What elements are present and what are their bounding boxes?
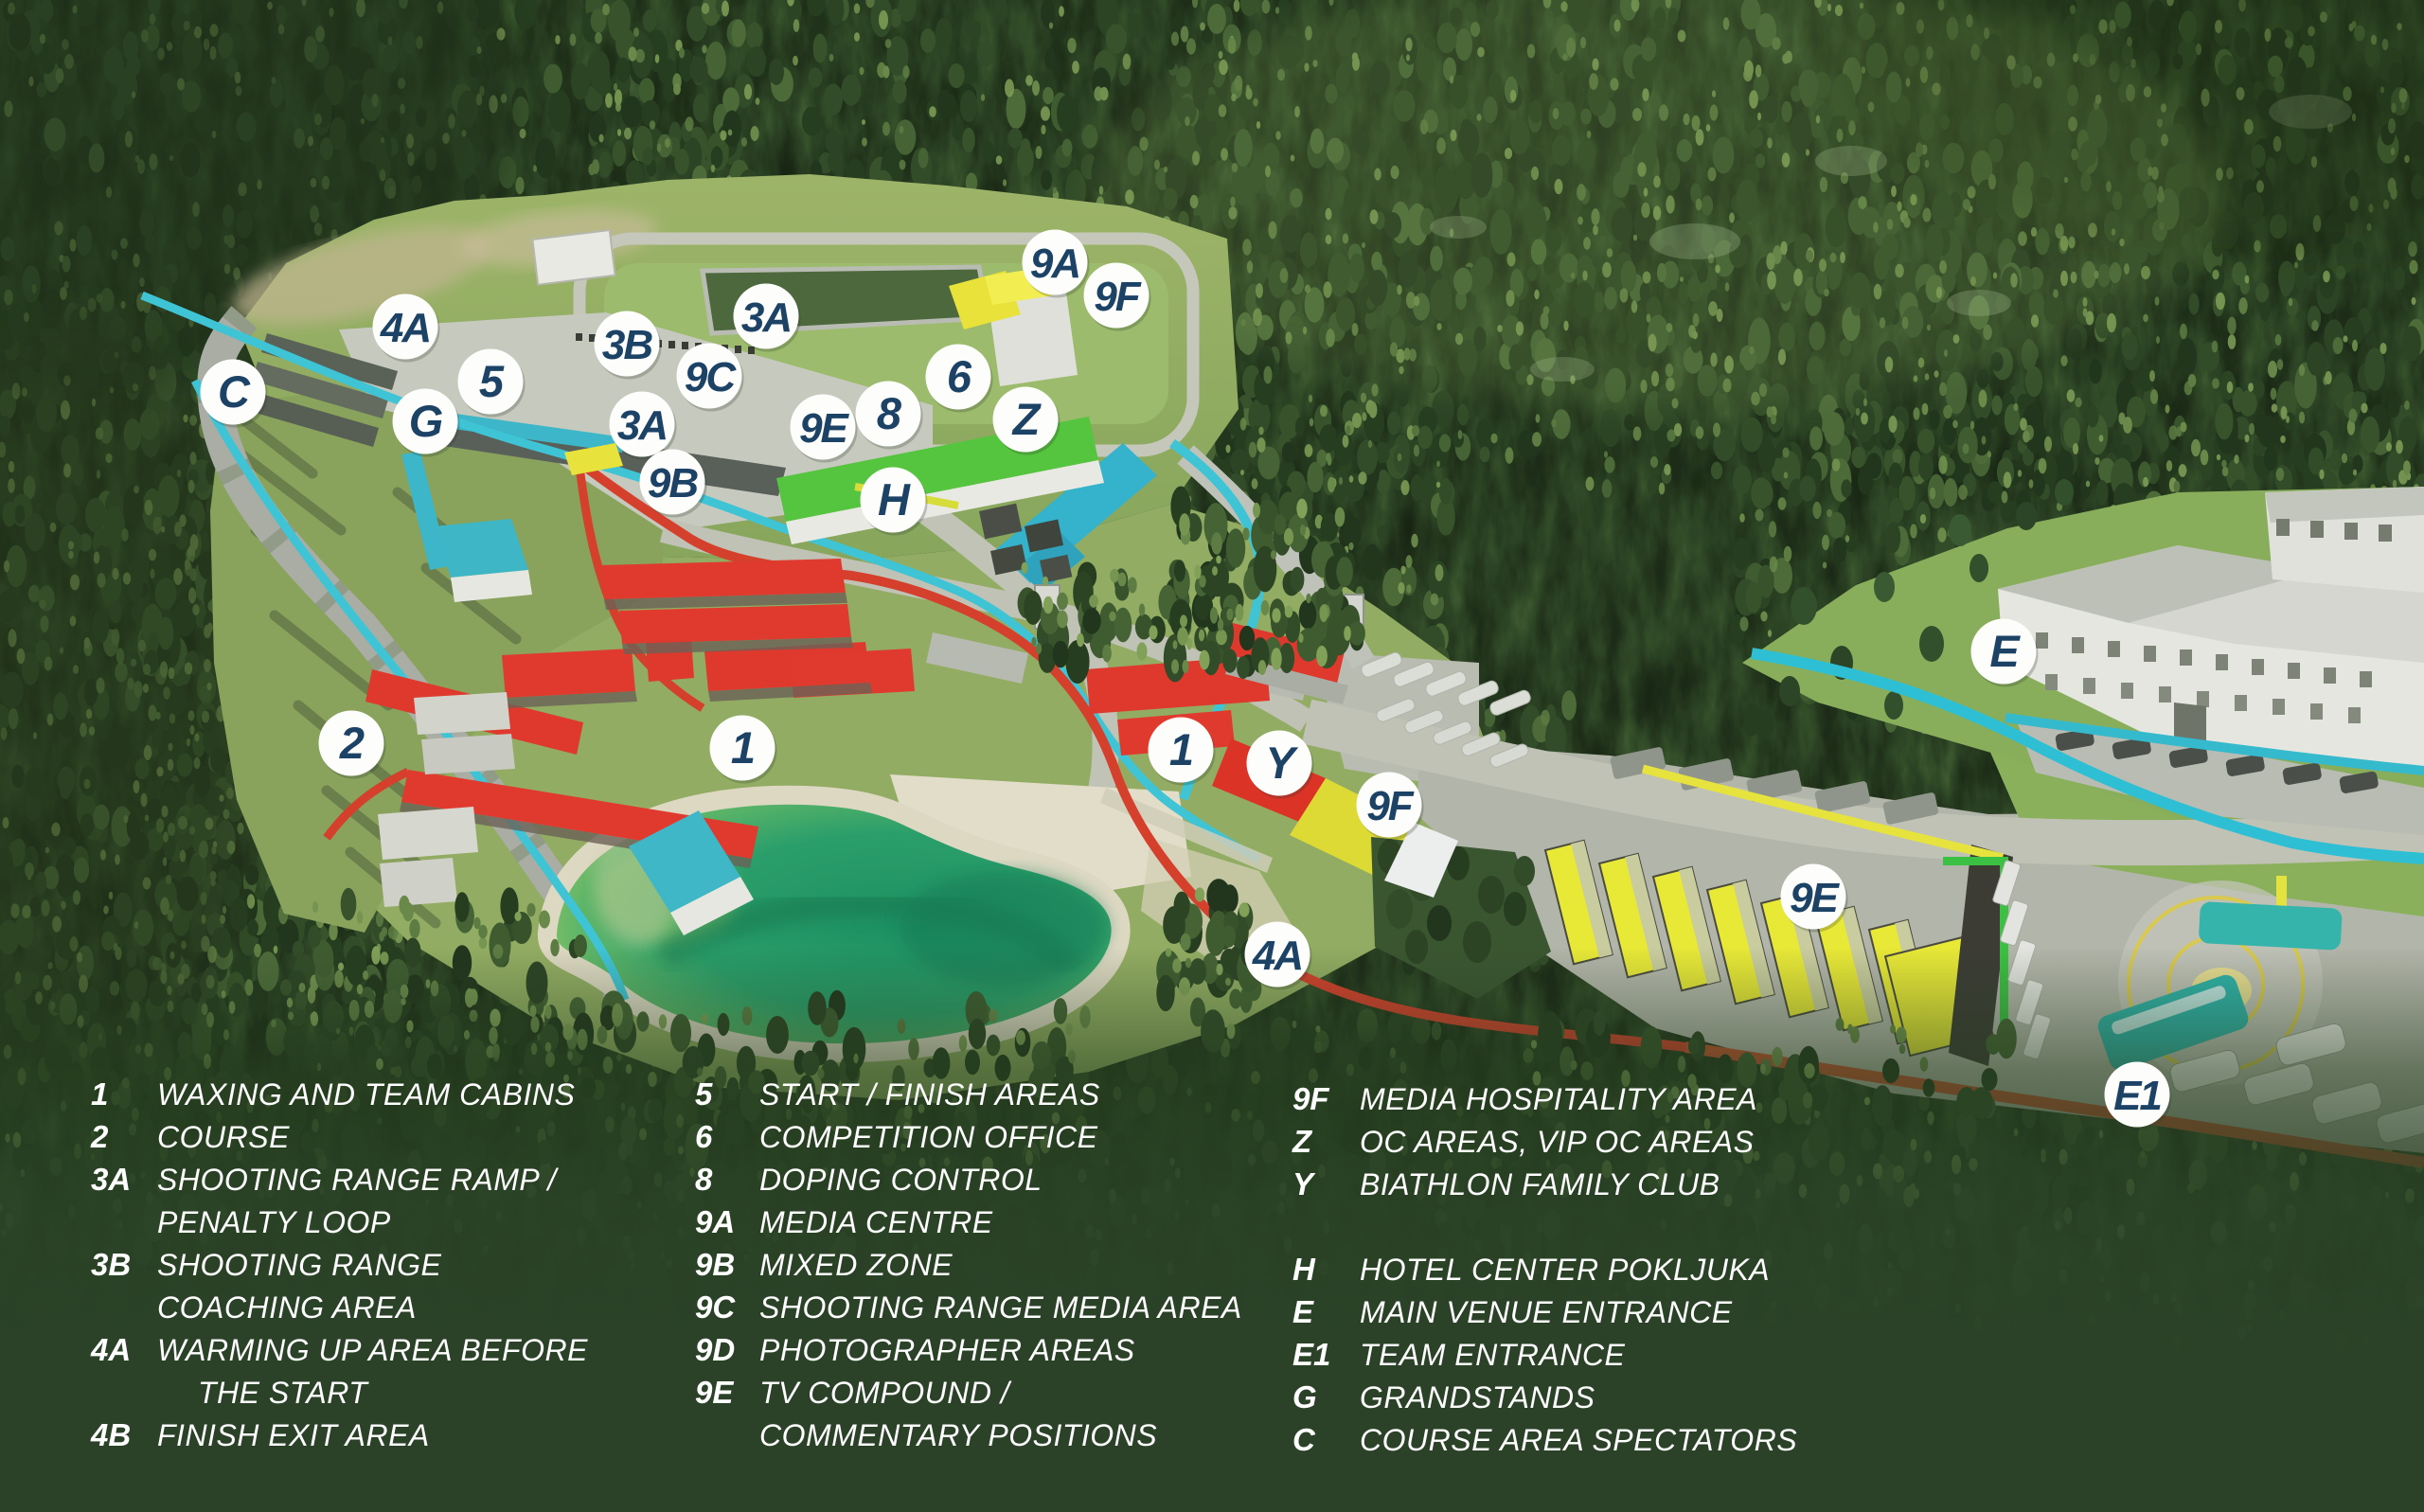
svg-text:9A: 9A xyxy=(695,1204,735,1239)
svg-text:COMMENTARY POSITIONS: COMMENTARY POSITIONS xyxy=(759,1418,1157,1452)
svg-text:MEDIA HOSPITALITY AREA: MEDIA HOSPITALITY AREA xyxy=(1360,1082,1757,1116)
svg-text:9F: 9F xyxy=(1094,274,1141,320)
svg-text:4A: 4A xyxy=(380,305,430,351)
svg-text:OC AREAS, VIP OC AREAS: OC AREAS, VIP OC AREAS xyxy=(1360,1125,1754,1159)
svg-text:3A: 3A xyxy=(741,294,791,341)
svg-text:COMPETITION OFFICE: COMPETITION OFFICE xyxy=(759,1120,1098,1154)
svg-text:E1: E1 xyxy=(2113,1073,2161,1119)
svg-text:SHOOTING RANGE MEDIA AREA: SHOOTING RANGE MEDIA AREA xyxy=(759,1290,1242,1325)
svg-text:9B: 9B xyxy=(695,1247,735,1282)
svg-text:C: C xyxy=(1292,1422,1316,1457)
svg-text:5: 5 xyxy=(695,1076,713,1112)
svg-text:MAIN VENUE ENTRANCE: MAIN VENUE ENTRANCE xyxy=(1360,1295,1733,1329)
svg-text:WAXING AND TEAM CABINS: WAXING AND TEAM CABINS xyxy=(157,1077,575,1112)
svg-text:THE START: THE START xyxy=(198,1376,369,1410)
svg-text:9E: 9E xyxy=(799,405,849,452)
svg-text:TV COMPOUND /: TV COMPOUND / xyxy=(759,1376,1012,1410)
svg-text:WARMING UP AREA BEFORE: WARMING UP AREA BEFORE xyxy=(157,1333,588,1367)
svg-text:COURSE: COURSE xyxy=(157,1120,290,1154)
svg-text:GRANDSTANDS: GRANDSTANDS xyxy=(1360,1380,1595,1414)
svg-text:SHOOTING RANGE RAMP /: SHOOTING RANGE RAMP / xyxy=(157,1163,559,1197)
svg-text:9E: 9E xyxy=(695,1375,734,1410)
svg-text:8: 8 xyxy=(695,1162,713,1197)
svg-text:6: 6 xyxy=(695,1119,713,1154)
svg-text:4A: 4A xyxy=(90,1332,131,1367)
svg-text:E: E xyxy=(1989,626,2021,676)
svg-text:PHOTOGRAPHER AREAS: PHOTOGRAPHER AREAS xyxy=(759,1333,1135,1367)
svg-text:COURSE AREA SPECTATORS: COURSE AREA SPECTATORS xyxy=(1360,1423,1797,1457)
svg-text:G: G xyxy=(409,396,443,446)
svg-text:3B: 3B xyxy=(602,322,652,368)
svg-text:4A: 4A xyxy=(1252,933,1302,979)
svg-text:9C: 9C xyxy=(695,1290,736,1325)
svg-text:HOTEL CENTER POKLJUKA: HOTEL CENTER POKLJUKA xyxy=(1360,1253,1770,1287)
svg-text:DOPING CONTROL: DOPING CONTROL xyxy=(759,1163,1043,1197)
svg-text:2: 2 xyxy=(339,718,365,768)
svg-text:1: 1 xyxy=(91,1076,108,1112)
svg-text:9F: 9F xyxy=(1366,783,1414,829)
svg-text:SHOOTING RANGE: SHOOTING RANGE xyxy=(157,1248,442,1282)
svg-text:COACHING AREA: COACHING AREA xyxy=(157,1290,417,1325)
svg-text:6: 6 xyxy=(947,351,972,401)
svg-text:Z: Z xyxy=(1011,394,1043,444)
svg-text:FINISH EXIT AREA: FINISH EXIT AREA xyxy=(157,1418,430,1452)
svg-text:BIATHLON FAMILY CLUB: BIATHLON FAMILY CLUB xyxy=(1360,1167,1720,1201)
svg-text:9B: 9B xyxy=(648,460,698,507)
svg-text:4B: 4B xyxy=(90,1417,131,1452)
svg-text:9D: 9D xyxy=(695,1332,735,1367)
svg-text:MIXED ZONE: MIXED ZONE xyxy=(759,1248,953,1282)
svg-text:9C: 9C xyxy=(685,354,737,400)
svg-text:1: 1 xyxy=(731,722,754,773)
svg-text:Z: Z xyxy=(1292,1124,1313,1159)
svg-text:3B: 3B xyxy=(91,1247,131,1282)
svg-text:H: H xyxy=(1292,1252,1316,1287)
svg-text:2: 2 xyxy=(90,1119,109,1154)
svg-text:3A: 3A xyxy=(617,402,667,449)
svg-text:9E: 9E xyxy=(1790,875,1840,921)
svg-text:C: C xyxy=(218,366,251,417)
svg-text:Y: Y xyxy=(1292,1166,1316,1201)
svg-text:G: G xyxy=(1292,1379,1317,1414)
svg-text:E1: E1 xyxy=(1292,1337,1330,1372)
svg-text:TEAM ENTRANCE: TEAM ENTRANCE xyxy=(1360,1338,1625,1372)
svg-text:START / FINISH AREAS: START / FINISH AREAS xyxy=(759,1077,1100,1112)
svg-text:9F: 9F xyxy=(1292,1081,1329,1116)
svg-text:MEDIA CENTRE: MEDIA CENTRE xyxy=(759,1205,993,1239)
svg-text:H: H xyxy=(878,474,911,525)
svg-text:3A: 3A xyxy=(91,1162,131,1197)
svg-text:9A: 9A xyxy=(1030,240,1079,287)
svg-text:8: 8 xyxy=(877,388,902,438)
svg-text:5: 5 xyxy=(479,356,505,406)
svg-text:PENALTY LOOP: PENALTY LOOP xyxy=(157,1205,391,1239)
svg-text:1: 1 xyxy=(1169,724,1192,774)
svg-text:E: E xyxy=(1292,1294,1314,1329)
